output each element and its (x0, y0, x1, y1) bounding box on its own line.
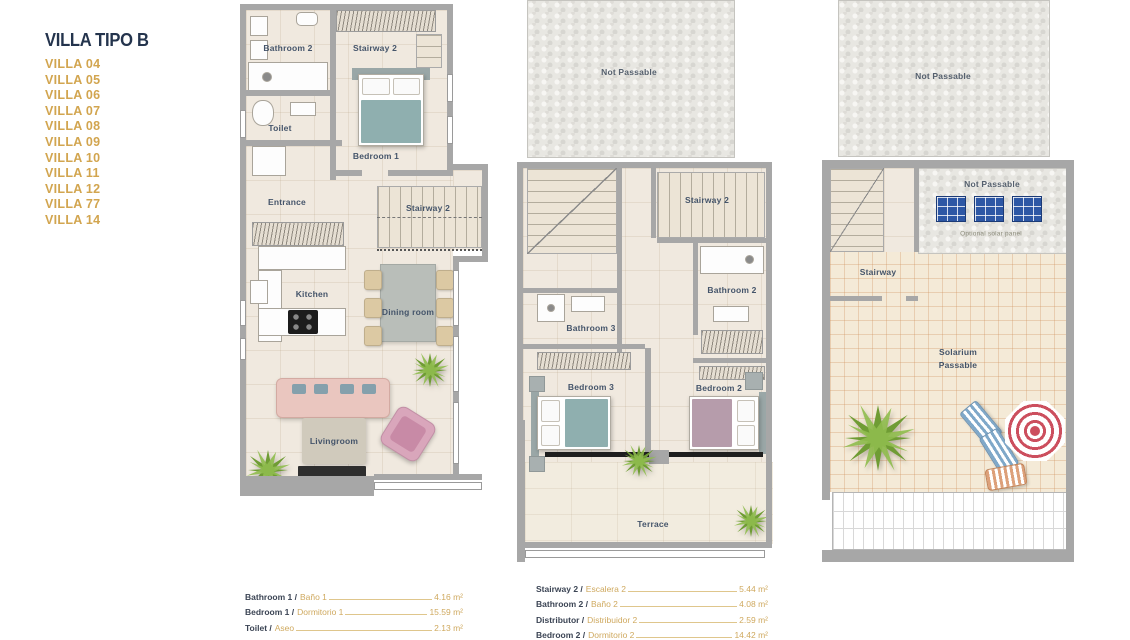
wall (693, 243, 698, 335)
dining-table (380, 264, 436, 342)
legend-label-es: Dormitorio 1 (297, 607, 343, 617)
legend-label-es: Dormitorio 2 (588, 630, 634, 640)
wall (246, 90, 336, 96)
railing (525, 550, 765, 558)
bed (537, 396, 611, 450)
bed-blanket (692, 399, 732, 447)
room-label-bathroom2: Bathroom 2 (707, 285, 756, 295)
palm-tree (845, 405, 911, 471)
legend-label-en: Bedroom 1 / (245, 607, 294, 617)
wall (617, 288, 622, 352)
villa-link-04[interactable]: VILLA 04 (45, 57, 215, 73)
wall (517, 162, 772, 168)
legend-leader-line (296, 630, 432, 631)
wall (246, 140, 342, 146)
wall (388, 170, 453, 176)
wall (1066, 160, 1074, 556)
villa-link-08[interactable]: VILLA 08 (45, 119, 215, 135)
room-label-stairway: Stairway (860, 267, 897, 277)
window (240, 300, 246, 326)
room-label-entrance: Entrance (268, 197, 306, 207)
room-label-bathroom2: Bathroom 2 (263, 43, 312, 53)
legend-label-en: Distributor / (536, 615, 584, 625)
roof-plan: Not Passable Not Passable Optional solar… (822, 0, 1100, 562)
pillow (737, 425, 755, 447)
closet (252, 146, 286, 176)
bed-pillows (734, 397, 758, 449)
legend-row: Stairway 2 / Escalera 2 5.44 m² (536, 578, 768, 594)
wardrobe-hatch (336, 10, 436, 32)
sink (713, 306, 749, 322)
villa-link-77[interactable]: VILLA 77 (45, 197, 215, 213)
legend-leader-line (345, 614, 427, 615)
legend-value: 14.42 m² (734, 630, 768, 640)
plant (413, 353, 447, 387)
wall (766, 162, 772, 548)
legend-value: 2.59 m² (739, 615, 768, 625)
solar-panel (936, 196, 966, 222)
wall (906, 296, 918, 301)
room-label-bedroom1: Bedroom 1 (353, 151, 399, 161)
wall (651, 168, 656, 238)
legend-label-es: Escalera 2 (586, 584, 626, 594)
wardrobe-hatch (537, 352, 631, 370)
window (453, 270, 459, 326)
wall (240, 4, 453, 10)
pergola (832, 492, 1068, 550)
first-floor-plan: Not Passable Stairway 2 Bathroom 2 Bathr… (517, 0, 789, 562)
bathtub-hatch (701, 330, 763, 354)
wall (240, 476, 374, 496)
bathroom-counter (700, 246, 764, 274)
wall (617, 168, 622, 288)
window (447, 74, 453, 102)
legend-value: 5.44 m² (739, 584, 768, 594)
label-not-passable-upper: Not Passable (915, 71, 971, 81)
wall (330, 90, 336, 180)
room-label-stairway2: Stairway 2 (353, 43, 397, 53)
legend-row: Bathroom 2 / Baño 2 4.08 m² (536, 594, 768, 610)
window (453, 336, 459, 392)
villa-link-05[interactable]: VILLA 05 (45, 73, 215, 89)
legend-label-es: Distribuidor 2 (587, 615, 637, 625)
bed-blanket (361, 100, 421, 143)
bed-pillows (359, 75, 423, 98)
room-label-stairway2: Stairway 2 (685, 195, 729, 205)
wall (517, 420, 525, 562)
bed (689, 396, 759, 450)
pillow (362, 78, 390, 95)
villa-link-09[interactable]: VILLA 09 (45, 135, 215, 151)
legend-leader-line (639, 622, 737, 623)
wall (523, 542, 766, 548)
nightstand (529, 376, 545, 392)
room-label-terrace: Terrace (637, 519, 669, 529)
sink (571, 296, 605, 312)
legend-value: 4.08 m² (739, 599, 768, 609)
legend-row: Toilet / Aseo 2.13 m² (245, 617, 463, 633)
wall (523, 344, 645, 349)
legend-leader-line (620, 606, 737, 607)
wall (830, 296, 882, 301)
villa-link-11[interactable]: VILLA 11 (45, 166, 215, 182)
sofa-cushion (292, 384, 306, 394)
legend-value: 4.16 m² (434, 592, 463, 602)
sofa-cushion (362, 384, 376, 394)
wall (240, 4, 246, 476)
wall (330, 10, 336, 96)
armchair-seat (389, 415, 428, 454)
legend-leader-line (628, 591, 737, 592)
shower-drain (547, 304, 555, 312)
solar-panel (974, 196, 1004, 222)
wall (523, 288, 622, 293)
bed-pillows (538, 397, 563, 449)
room-label-bedroom2: Bedroom 2 (696, 383, 742, 393)
window (374, 482, 482, 490)
parasol-umbrella (1005, 401, 1065, 461)
villa-link-07[interactable]: VILLA 07 (45, 104, 215, 120)
legend-label-en: Bathroom 1 / (245, 592, 297, 602)
wall (482, 164, 488, 262)
wall (336, 170, 362, 176)
stair-edge-dots (377, 249, 482, 251)
wall (517, 162, 523, 422)
room-label-solarium-1: Solarium (939, 347, 977, 357)
sliding-door (669, 452, 763, 457)
legend-label-es: Baño 2 (591, 599, 618, 609)
legend-row: Bedroom 1 / Dormitorio 1 15.59 m² (245, 602, 463, 618)
legend-label-en: Bedroom 2 / (536, 630, 585, 640)
villa-link-12[interactable]: VILLA 12 (45, 182, 215, 198)
bed-blanket (565, 399, 608, 447)
room-label-bedroom3: Bedroom 3 (568, 382, 614, 392)
legend-value: 15.59 m² (429, 607, 463, 617)
villa-link-06[interactable]: VILLA 06 (45, 88, 215, 104)
wall (822, 160, 1074, 168)
room-label-bathroom3: Bathroom 3 (566, 323, 615, 333)
window (240, 110, 246, 138)
stair-dash-line (377, 217, 482, 218)
wall (374, 474, 482, 480)
room-label-dining: Dining room (382, 307, 434, 317)
pillow (541, 400, 560, 422)
stove (288, 310, 318, 334)
pillow (393, 78, 421, 95)
solar-panel (1012, 196, 1042, 222)
sink-drain (745, 255, 754, 264)
legend-label-es: Baño 1 (300, 592, 327, 602)
pillow (541, 425, 560, 447)
wall (693, 358, 766, 363)
label-solar-caption: Optional solar panel (960, 231, 1022, 238)
sink (250, 16, 268, 36)
chair (364, 298, 382, 318)
legend-label-en: Toilet / (245, 623, 272, 633)
legend-label-es: Aseo (275, 623, 294, 633)
legend-leader-line (636, 637, 732, 638)
fridge (250, 280, 268, 304)
legend-label-en: Bathroom 2 / (536, 599, 588, 609)
room-label-stairway2-lower: Stairway 2 (406, 203, 450, 213)
wall (822, 550, 1074, 562)
legend-value: 2.13 m² (434, 623, 463, 633)
sofa-cushion (314, 384, 328, 394)
window (453, 402, 459, 464)
bed (358, 74, 424, 146)
legend-row: Distributor / Distribuidor 2 2.59 m² (536, 609, 768, 625)
villa-link-10[interactable]: VILLA 10 (45, 151, 215, 167)
legend-label-en: Stairway 2 / (536, 584, 583, 594)
roof-not-passable (527, 0, 735, 158)
sink (290, 102, 316, 116)
legend-leader-line (329, 599, 432, 600)
wall (657, 238, 766, 243)
room-label-livingroom: Livingroom (310, 436, 358, 446)
legend-column-2: Stairway 2 / Escalera 2 5.44 m² Bathroom… (536, 578, 768, 640)
chair (364, 270, 382, 290)
plant (623, 445, 655, 477)
label-not-passable: Not Passable (601, 67, 657, 77)
label-not-passable-solar: Not Passable (964, 179, 1020, 189)
room-label-solarium-2: Passable (939, 360, 977, 370)
stair-diagonal (830, 168, 884, 252)
stairway-treads (657, 172, 765, 238)
legend-row: Bathroom 1 / Baño 1 4.16 m² (245, 586, 463, 602)
chair (364, 326, 382, 346)
chair (436, 326, 454, 346)
room-label-kitchen: Kitchen (296, 289, 329, 299)
stair-treads (416, 34, 442, 68)
plant (735, 505, 767, 537)
wall (914, 168, 919, 252)
bathtub (248, 62, 328, 92)
room-label-toilet: Toilet (268, 123, 291, 133)
nightstand (745, 372, 763, 390)
nightstand (529, 456, 545, 472)
window (240, 338, 246, 360)
villa-link-14[interactable]: VILLA 14 (45, 213, 215, 229)
villa-sidebar: VILLA TIPO B VILLA 04 VILLA 05 VILLA 06 … (45, 30, 215, 229)
sofa-cushion (340, 384, 354, 394)
bathtub-drain (262, 72, 272, 82)
kitchen-counter (258, 246, 346, 270)
chair (436, 270, 454, 290)
stair-landing (884, 168, 918, 252)
legend-column-1: Bathroom 1 / Baño 1 4.16 m² Bedroom 1 / … (245, 586, 463, 633)
wall (822, 160, 830, 500)
ground-floor-plan: Bathroom 2 Stairway 2 Toilet Bedroom 1 E… (240, 4, 510, 516)
wardrobe-hatch (252, 222, 344, 246)
window (447, 116, 453, 144)
legend-row: Bedroom 2 / Dormitorio 2 14.42 m² (536, 625, 768, 640)
stair-diagonal (527, 168, 617, 254)
pillow (737, 400, 755, 422)
page-title: VILLA TIPO B (45, 30, 201, 51)
toilet-wc (296, 12, 318, 26)
chair (436, 298, 454, 318)
